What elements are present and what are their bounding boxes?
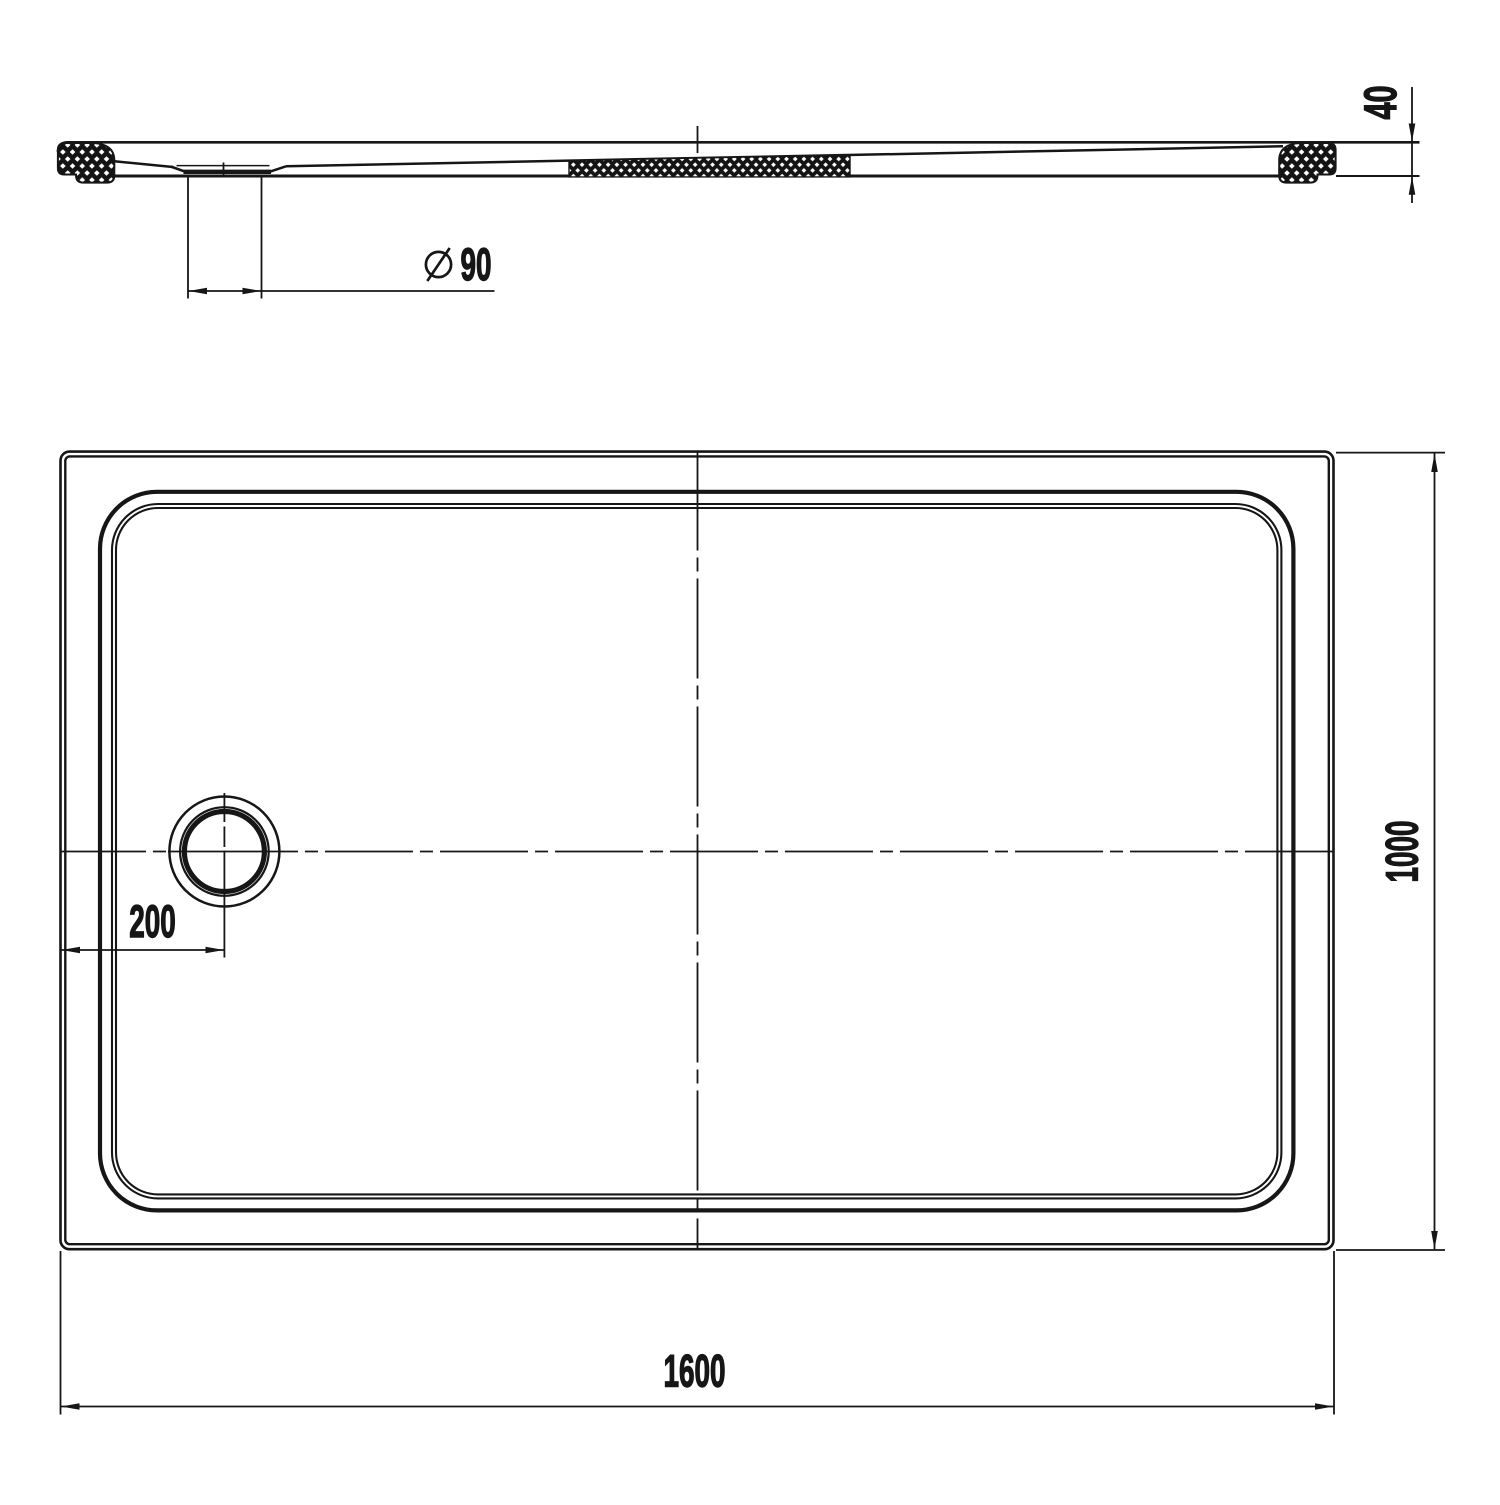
svg-text:1000: 1000	[1377, 820, 1427, 882]
svg-text:200: 200	[129, 896, 176, 946]
svg-text:90: 90	[460, 239, 491, 289]
svg-text:1600: 1600	[663, 1346, 725, 1396]
svg-text:40: 40	[1356, 85, 1406, 119]
